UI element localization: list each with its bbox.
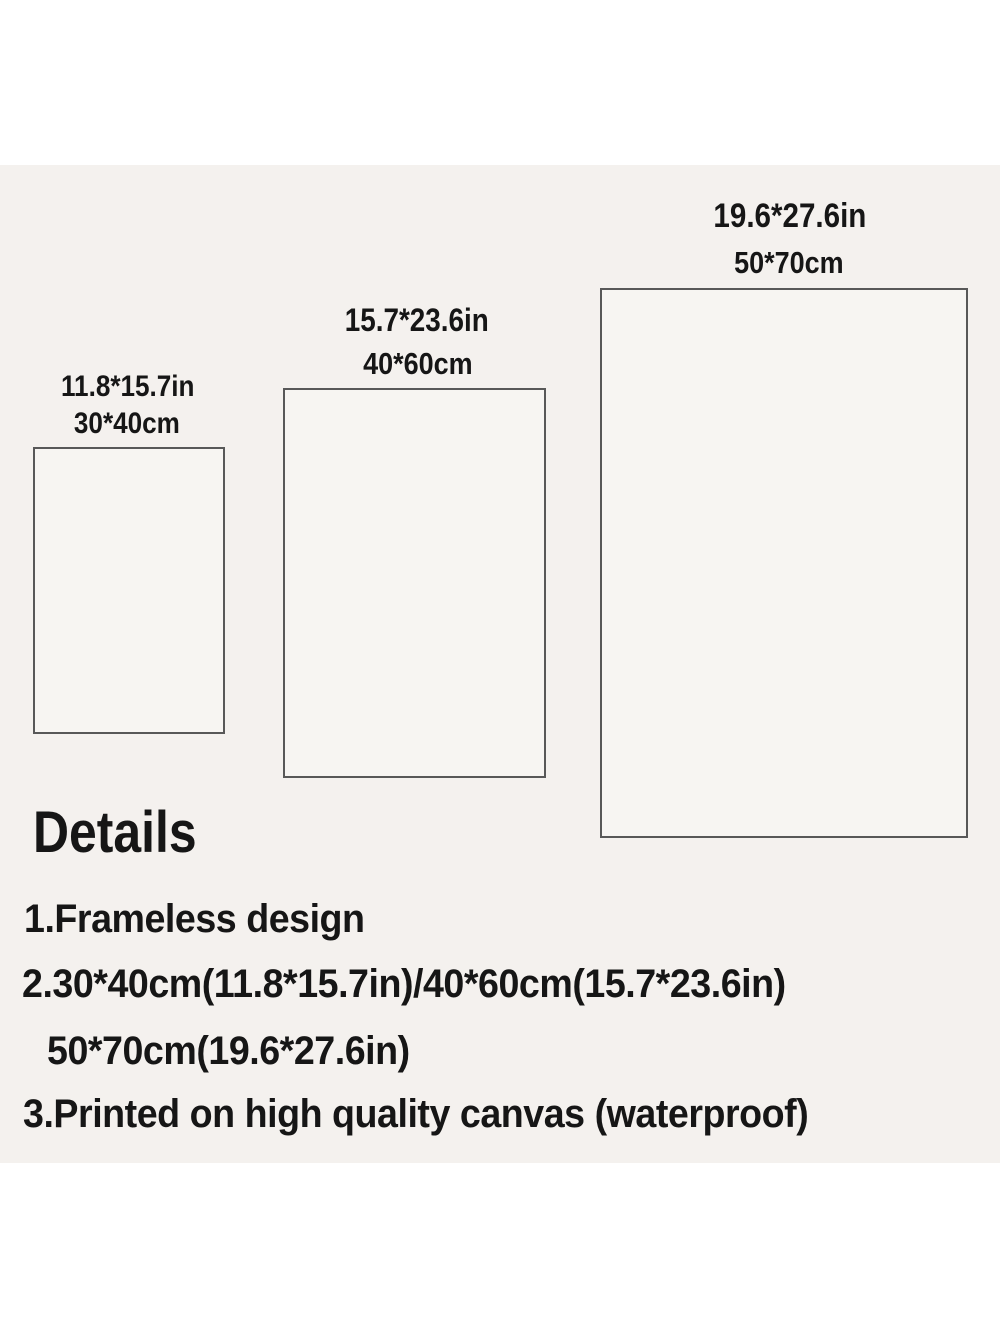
details-line-sizes: 2.30*40cm(11.8*15.7in)/40*60cm(15.7*23.6… bbox=[22, 962, 834, 1006]
size-box-50x70cm bbox=[600, 288, 968, 838]
size-label-cm-large-text: 50*70cm bbox=[734, 246, 843, 280]
size-box-30x40cm bbox=[33, 447, 225, 734]
size-label-cm-small-text: 30*40cm bbox=[74, 407, 180, 440]
details-line-frameless: 1.Frameless design bbox=[24, 897, 386, 941]
details-heading: Details bbox=[33, 803, 223, 864]
details-line-canvas-text: 3.Printed on high quality canvas (waterp… bbox=[23, 1092, 808, 1136]
size-label-inches-large-text: 19.6*27.6in bbox=[714, 198, 867, 235]
details-line-frameless-text: 1.Frameless design bbox=[24, 897, 365, 941]
size-box-40x60cm bbox=[283, 388, 546, 778]
details-line-sizes-text: 2.30*40cm(11.8*15.7in)/40*60cm(15.7*23.6… bbox=[22, 962, 786, 1006]
size-label-inches-medium: 15.7*23.6in bbox=[267, 303, 567, 338]
size-label-inches-medium-text: 15.7*23.6in bbox=[345, 303, 489, 338]
size-label-cm-small: 30*40cm bbox=[0, 407, 277, 440]
details-line-canvas: 3.Printed on high quality canvas (waterp… bbox=[23, 1092, 858, 1136]
details-line-sizes-continued: 50*70cm(19.6*27.6in) bbox=[47, 1029, 433, 1073]
size-label-cm-medium: 40*60cm bbox=[268, 347, 568, 381]
size-label-inches-large: 19.6*27.6in bbox=[640, 198, 940, 235]
size-label-inches-small-text: 11.8*15.7in bbox=[61, 370, 195, 403]
size-chart-image: 11.8*15.7in 30*40cm 15.7*23.6in 40*60cm … bbox=[0, 0, 1000, 1333]
size-label-cm-large: 50*70cm bbox=[639, 246, 939, 280]
details-heading-text: Details bbox=[33, 803, 197, 864]
size-label-cm-medium-text: 40*60cm bbox=[363, 347, 472, 381]
size-label-inches-small: 11.8*15.7in bbox=[0, 370, 278, 403]
details-line-sizes-continued-text: 50*70cm(19.6*27.6in) bbox=[47, 1029, 410, 1073]
